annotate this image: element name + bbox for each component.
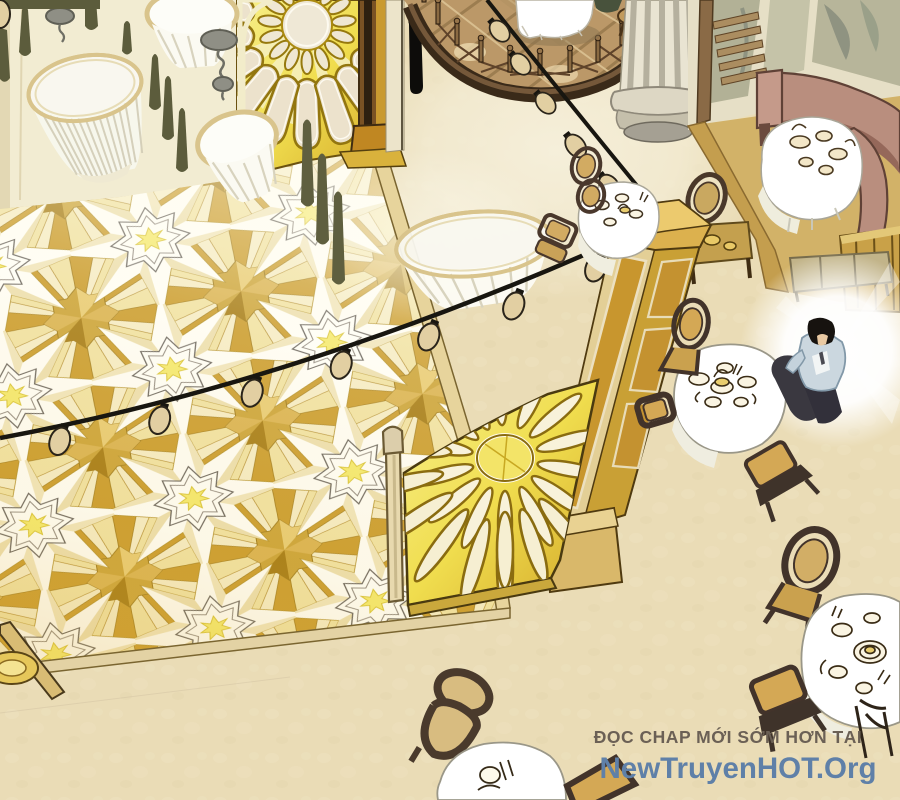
- svg-text:NewTruyenHOT.Org: NewTruyenHOT.Org: [599, 752, 876, 785]
- svg-text:ĐỌC CHAP MỚI SỚM HƠN TẠI: ĐỌC CHAP MỚI SỚM HƠN TẠI: [594, 726, 862, 747]
